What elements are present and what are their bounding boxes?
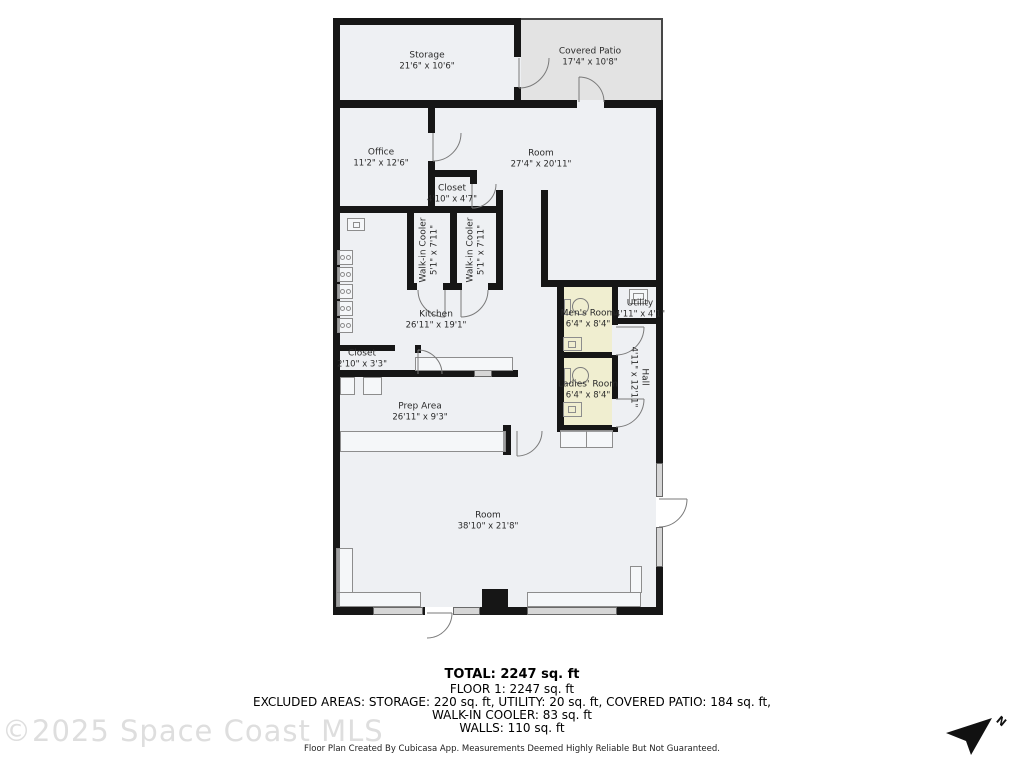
door-opening bbox=[612, 325, 618, 355]
wall bbox=[450, 206, 457, 290]
counter bbox=[560, 430, 587, 448]
wall bbox=[407, 283, 417, 290]
door-opening bbox=[577, 100, 604, 108]
window bbox=[656, 527, 663, 567]
counter bbox=[336, 548, 353, 593]
wall bbox=[557, 352, 618, 358]
wall bbox=[333, 100, 663, 108]
stove bbox=[337, 318, 353, 333]
wall bbox=[333, 18, 521, 25]
room-label-office: Office11'2" x 12'6" bbox=[353, 148, 408, 169]
room-dims: 6'4" x 8'4" bbox=[558, 391, 618, 401]
room-label-kitchen: Kitchen26'11" x 19'1" bbox=[406, 310, 467, 331]
wall bbox=[514, 18, 521, 58]
window bbox=[453, 607, 480, 615]
wall bbox=[541, 190, 548, 287]
floor-plan: Storage21'6" x 10'6" Covered Patio17'4" … bbox=[0, 0, 1024, 768]
wall bbox=[407, 206, 414, 290]
counter bbox=[336, 592, 421, 607]
wall bbox=[470, 170, 477, 184]
wall bbox=[488, 283, 503, 290]
stove bbox=[337, 250, 353, 265]
room-label-covered-patio: Covered Patio17'4" x 10'8" bbox=[559, 47, 621, 68]
door-opening bbox=[428, 133, 435, 161]
room-label-utility: Utility4'11" x 4'1" bbox=[615, 299, 665, 320]
floor1-area: FLOOR 1: 2247 sq. ft bbox=[0, 683, 1024, 695]
room-label-walkin-cooler-left: Walk-in Cooler5'1" x 7'11" bbox=[419, 218, 440, 283]
stove bbox=[337, 267, 353, 282]
bathroom-sink bbox=[563, 402, 582, 417]
stove bbox=[337, 284, 353, 299]
bathroom-sink bbox=[563, 337, 582, 351]
room-name: Ladies' Room bbox=[558, 380, 618, 391]
kitchen-counter bbox=[415, 357, 513, 371]
prep-counter bbox=[340, 431, 506, 452]
door-arc bbox=[659, 499, 687, 527]
room-label-hall: Hall4'11" x 12'11" bbox=[629, 347, 650, 408]
kitchen-sink bbox=[347, 218, 365, 231]
stove bbox=[337, 301, 353, 316]
window bbox=[527, 607, 617, 615]
counter bbox=[630, 566, 642, 593]
door-opening bbox=[425, 607, 453, 615]
prep-equipment bbox=[340, 377, 355, 395]
door-arc bbox=[427, 613, 452, 638]
room-label-room-upper: Room27'4" x 20'11" bbox=[511, 149, 572, 170]
excluded-areas-line1: EXCLUDED AREAS: STORAGE: 220 sq. ft, UTI… bbox=[0, 696, 1024, 708]
room-label-ladies-room: Ladies' Room6'4" x 8'4" bbox=[558, 380, 618, 401]
door-opening bbox=[514, 57, 521, 87]
door-opening bbox=[656, 497, 663, 527]
window bbox=[373, 607, 423, 615]
room-label-walkin-cooler-right: Walk-in Cooler5'1" x 7'11" bbox=[466, 218, 487, 283]
wall bbox=[541, 280, 663, 287]
room-label-closet-upper: Closet4'10" x 4'7" bbox=[427, 184, 477, 205]
room-label-prep-area: Prep Area26'11" x 9'3" bbox=[392, 402, 447, 423]
room-label-mens-room: Men's Room6'4" x 8'4" bbox=[561, 309, 616, 330]
sink-basin bbox=[353, 222, 360, 228]
room-label-room-lower: Room38'10" x 21'8" bbox=[458, 511, 519, 532]
column bbox=[482, 589, 508, 613]
door-opening bbox=[612, 399, 618, 427]
counter bbox=[586, 430, 613, 448]
wall bbox=[428, 108, 435, 133]
wall bbox=[443, 283, 462, 290]
room-label-storage: Storage21'6" x 10'6" bbox=[399, 51, 454, 72]
pass-through-window bbox=[474, 370, 492, 377]
counter bbox=[527, 592, 641, 607]
mls-watermark: ©2025 Space Coast MLS bbox=[2, 714, 384, 748]
room-label-closet-lower: Closet2'10" x 3'3" bbox=[337, 349, 387, 370]
wall bbox=[496, 190, 503, 290]
floor-plan-page: Storage21'6" x 10'6" Covered Patio17'4" … bbox=[0, 0, 1024, 768]
window bbox=[656, 463, 663, 497]
prep-equipment bbox=[363, 377, 382, 395]
wall bbox=[415, 345, 421, 353]
total-area: TOTAL: 2247 sq. ft bbox=[0, 668, 1024, 682]
wall bbox=[333, 206, 503, 213]
